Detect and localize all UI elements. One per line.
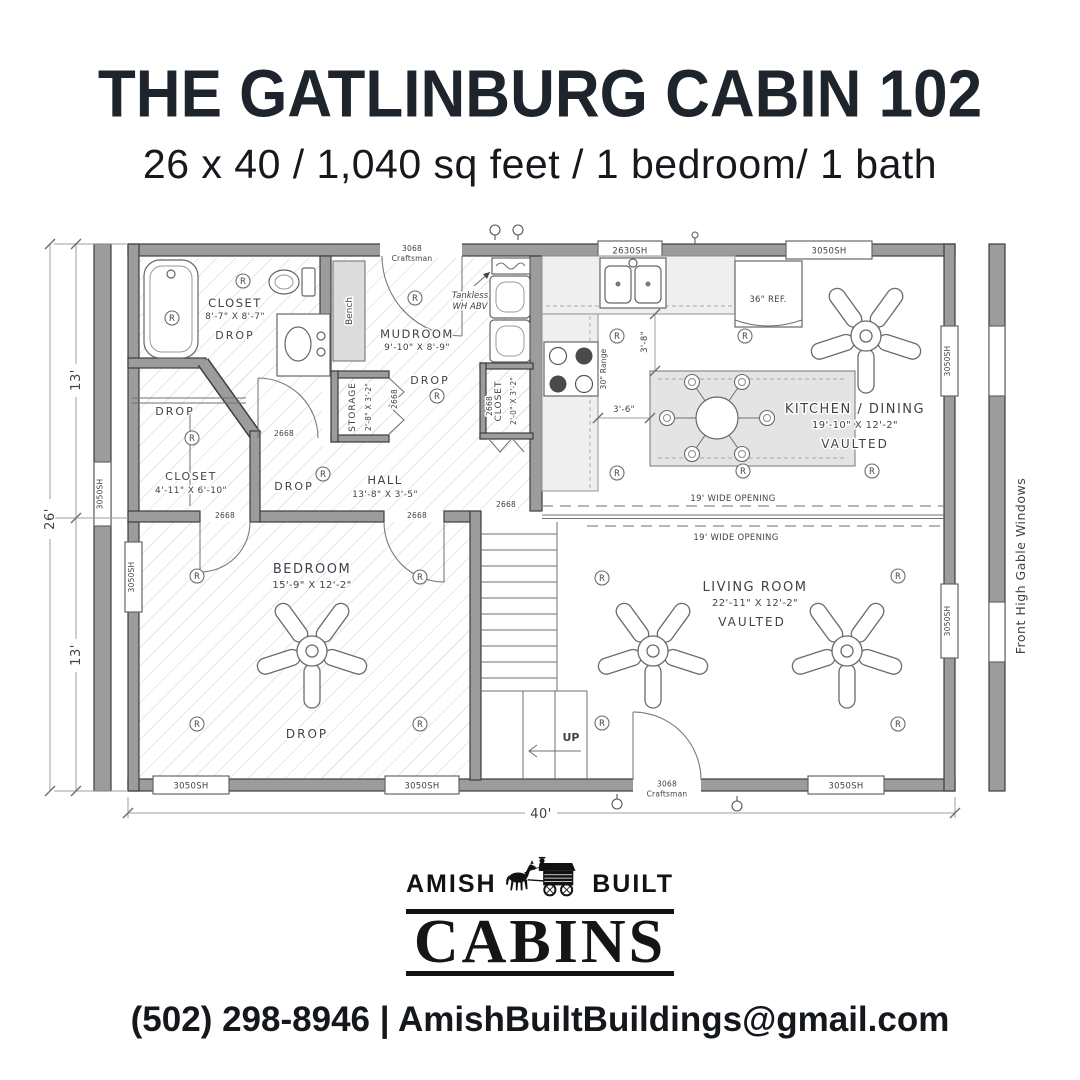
logo-word-built: BUILT	[592, 870, 674, 908]
page-title: THE GATLINBURG CABIN 102	[0, 56, 1080, 133]
laundry-closet-name: CLOSET	[494, 381, 504, 422]
laundry-closet-size: 2'-0" X 3'-2"	[509, 377, 518, 425]
logo-word-amish: AMISH	[406, 870, 497, 908]
kitchen-sink-icon	[600, 258, 666, 308]
gable-note: Front High Gable Windows	[1013, 478, 1028, 655]
door-label: 2668	[390, 389, 399, 409]
mudroom-ceiling: DROP	[410, 374, 449, 387]
staircase: UP	[481, 522, 587, 779]
contact-info: (502) 298-8946 | AmishBuiltBuildings@gma…	[0, 1000, 1080, 1040]
window-right-upper: 3050SH	[941, 326, 958, 396]
kitchen-size: 19'-10" X 12'-2"	[812, 420, 898, 431]
living-ceiling: VAULTED	[718, 615, 786, 629]
window-label: 3050SH	[404, 782, 439, 792]
hall-ceiling: DROP	[274, 480, 313, 493]
range-icon	[544, 342, 598, 396]
bedroom-size: 15'-9" X 12'-2"	[272, 580, 351, 591]
bathtub-icon	[144, 260, 198, 358]
bath-ceiling: DROP	[215, 329, 254, 342]
door-label: Craftsman	[647, 790, 688, 799]
window-label: 3050SH	[943, 606, 952, 637]
mudroom-size: 9'-10" X 8'-9"	[384, 343, 450, 353]
hall-name: HALL	[367, 473, 402, 487]
window-bottom-right: 3050SH	[808, 776, 884, 794]
bedroom-ceiling: DROP	[286, 727, 328, 741]
dryer-icon	[490, 276, 530, 318]
window-bedroom-left: 3050SH	[125, 542, 142, 612]
window-label: 3050SH	[96, 479, 105, 510]
kitchen-ceiling: VAULTED	[821, 437, 889, 451]
logo-top-row: AMISH	[406, 846, 674, 908]
door-label: Craftsman	[392, 254, 433, 263]
logo-brand-cabins: CABINS	[406, 915, 674, 970]
window-label: 3050SH	[173, 782, 208, 792]
vanity-sink-icon	[277, 314, 330, 376]
tankless-water-heater-icon	[492, 258, 530, 274]
door-label: 2668	[215, 511, 235, 520]
bedroom-closet-name: CLOSET	[165, 470, 217, 483]
range-label: 30" Range	[599, 348, 608, 389]
window-label: 3050SH	[828, 782, 863, 792]
bedroom-closet-ceiling: DROP	[155, 405, 194, 418]
dim-depth-bottom: 13'	[69, 644, 84, 666]
stairs-up-label: UP	[563, 731, 580, 744]
kitchen-name: KITCHEN / DINING	[785, 402, 925, 417]
door-label: 3068	[657, 780, 677, 789]
window-right-lower: 3050SH	[941, 584, 958, 658]
wide-opening: 19' WIDE OPENING 19' WIDE OPENING	[542, 494, 944, 543]
bench-label: Bench	[345, 297, 355, 325]
header: THE GATLINBURG CABIN 102 26 x 40 / 1,040…	[0, 0, 1080, 188]
window-bottom-left: 3050SH	[153, 776, 229, 794]
living-size: 22'-11" X 12'-2"	[712, 598, 798, 609]
fridge-label: 36" REF.	[749, 295, 786, 305]
brand-logo: AMISH	[406, 846, 674, 976]
door-label: 2668	[407, 511, 427, 520]
hall-size: 13'-8" X 3'-5"	[352, 490, 418, 500]
stair-door-label: 2668	[496, 500, 516, 509]
flyer: THE GATLINBURG CABIN 102 26 x 40 / 1,040…	[0, 0, 1080, 1080]
wide-opening-label: 19' WIDE OPENING	[690, 494, 775, 504]
floor-plan: R	[40, 214, 1040, 834]
mudroom-name: MUDROOM	[380, 327, 454, 341]
window-top-right: 3050SH	[786, 241, 872, 259]
window-label: 2630SH	[612, 247, 647, 257]
kitchen-island	[650, 371, 855, 466]
dim-depth-top: 13'	[69, 369, 84, 391]
window-label: 3050SH	[943, 346, 952, 377]
door-label: 2668	[485, 396, 494, 416]
floor-plan-drawing: R	[40, 214, 1040, 834]
horse-wagon-icon	[503, 846, 587, 908]
washer-icon	[490, 320, 530, 362]
door-label: 3068	[402, 244, 422, 253]
fridge-icon: 36" REF.	[735, 261, 802, 327]
living-name: LIVING ROOM	[703, 580, 808, 595]
bedroom-closet-size: 4'-11" X 6'-10"	[155, 486, 227, 496]
window-label: 3050SH	[127, 562, 136, 593]
window-bottom-middle: 3050SH	[385, 776, 459, 794]
storage-size: 2'-8" X 3'-2"	[364, 383, 373, 431]
tankless-label: WH ABV	[453, 302, 489, 312]
bedroom-name: BEDROOM	[273, 562, 351, 577]
window-label: 3050SH	[811, 247, 846, 257]
wide-opening-label: 19' WIDE OPENING	[693, 533, 778, 543]
page-subtitle: 26 x 40 / 1,040 sq feet / 1 bedroom/ 1 b…	[0, 141, 1080, 188]
kitchen-fixtures: 30" Range 36" REF.	[542, 256, 855, 491]
dim-total-width: 40'	[530, 807, 552, 822]
bath-name: CLOSET	[208, 296, 262, 310]
door-label: 2668	[274, 429, 294, 438]
dim-total-depth: 26'	[43, 508, 58, 530]
dim-label: 3'-8"	[640, 331, 650, 353]
bath-size: 8'-7" X 8'-7"	[205, 312, 265, 322]
tankless-label: Tankless	[452, 291, 489, 301]
toilet-icon	[269, 268, 315, 296]
dim-label: 3'-6"	[613, 405, 635, 415]
storage-name: STORAGE	[348, 382, 358, 432]
